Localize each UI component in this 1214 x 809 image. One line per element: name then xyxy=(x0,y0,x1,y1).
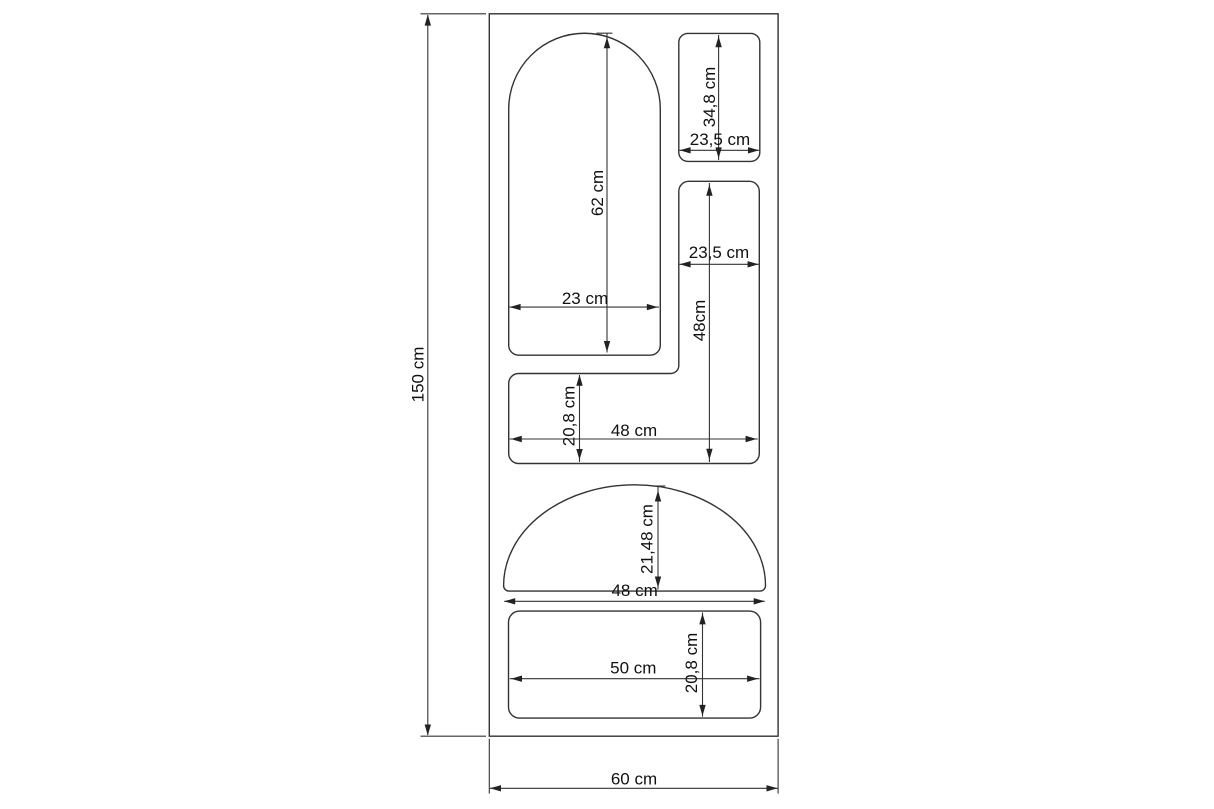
svg-text:20,8 cm: 20,8 cm xyxy=(682,633,701,693)
svg-text:20,8 cm: 20,8 cm xyxy=(560,386,579,446)
svg-text:23 cm: 23 cm xyxy=(562,289,608,308)
svg-text:62 cm: 62 cm xyxy=(588,170,607,216)
svg-text:60 cm: 60 cm xyxy=(611,770,657,789)
svg-text:21,48 cm: 21,48 cm xyxy=(638,504,657,574)
svg-text:48cm: 48cm xyxy=(690,300,709,342)
svg-text:50 cm: 50 cm xyxy=(610,659,656,678)
svg-text:150 cm: 150 cm xyxy=(409,347,428,403)
svg-text:23,5 cm: 23,5 cm xyxy=(689,243,749,262)
svg-text:34,8 cm: 34,8 cm xyxy=(700,67,719,127)
svg-text:48 cm: 48 cm xyxy=(611,581,657,600)
svg-text:48 cm: 48 cm xyxy=(611,421,657,440)
svg-text:23,5 cm: 23,5 cm xyxy=(690,130,750,149)
